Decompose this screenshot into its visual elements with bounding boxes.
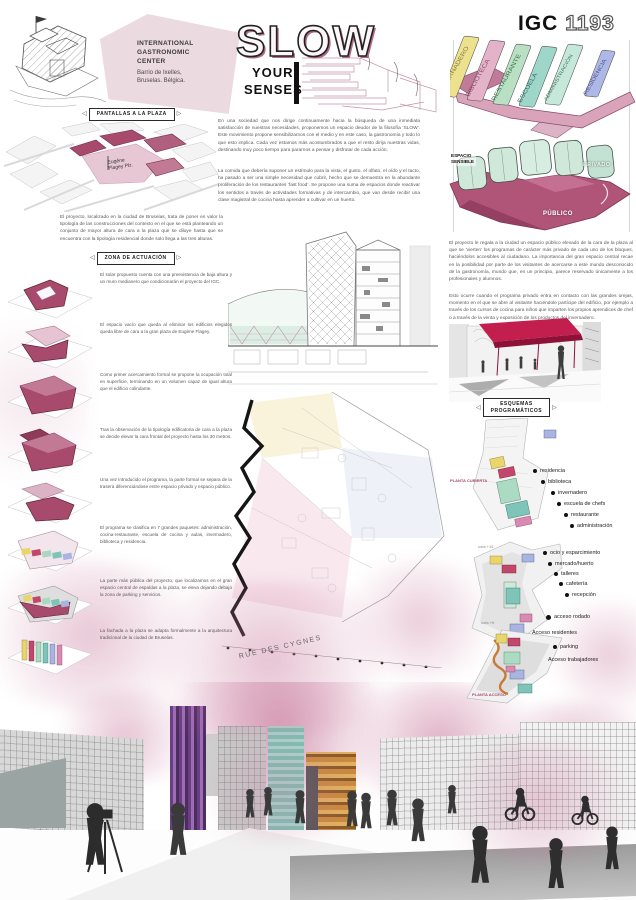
legend-item-escuela: escuela de chefs [557, 501, 605, 507]
step-axon-glyph [6, 372, 94, 420]
legend-label: Acceso trabajadores [548, 657, 598, 663]
chevron-right-icon: ▷ [177, 255, 182, 261]
step-text: Como primer acercamiento formal se propo… [100, 372, 232, 420]
chevron-left-icon: ◁ [82, 111, 87, 117]
legend-dot [565, 593, 569, 597]
building-section-drawing [228, 226, 438, 390]
legend-item-acceso-residentes: Acceso residentes [532, 630, 577, 636]
zona-step-7: La parte más pública del proyecto, que l… [6, 578, 234, 626]
legend-label: restaurante [571, 512, 599, 518]
program-plan-cubierta [468, 418, 568, 533]
tag-line2: PROGRAMÁTICOS [491, 408, 543, 415]
legend-dot [533, 469, 537, 473]
step-text: La fachada a la plaza se adapta formalme… [100, 628, 232, 676]
legend-item-biblioteca: biblioteca [541, 479, 571, 485]
zona-step-6: El programa se clasifica en 7 grandes pa… [6, 525, 234, 573]
step-axon-glyph [6, 427, 94, 475]
zone-label-publico: PÚBLICO [543, 211, 573, 217]
title-bar-decoration [294, 62, 299, 104]
legend-dot [570, 524, 574, 528]
legend-label: cafetería [566, 581, 587, 587]
legend-label: recepción [572, 592, 596, 598]
zona-step-3: Como primer acercamiento formal se propo… [6, 372, 234, 420]
intro-paragraph-1: En una sociedad que nos dirige continuam… [218, 118, 420, 154]
step-axon-glyph [6, 322, 94, 370]
plaza-render [449, 318, 601, 402]
legend-label: Acceso residentes [532, 630, 577, 636]
plan3-side-label: cota +6 [481, 620, 494, 625]
legend-dot [543, 551, 547, 555]
exploded-program-axon: INVERNADERO BIBLIOTECA RESTAURANTE ESCUE… [450, 20, 635, 132]
legend-dot [564, 513, 568, 517]
chevron-left-icon: ◁ [90, 255, 95, 261]
legend-item-parking: parking [553, 644, 578, 650]
legend-item-acceso-rodado: acceso rodado [546, 614, 590, 620]
chevron-left-icon: ◁ [476, 405, 481, 411]
project-code-number: 1193 [565, 12, 615, 35]
legend-label: acceso rodado [554, 614, 590, 620]
legend-dot [546, 615, 551, 620]
step-text: El solar propuesto cuenta con una preexi… [100, 272, 232, 320]
step-text: El espacio vacío que queda al eliminar l… [100, 322, 232, 370]
legend-label: escuela de chefs [564, 501, 605, 507]
poster: INTERNATIONAL GASTRONOMIC CENTER Barrio … [0, 0, 636, 900]
section-tag-pantallas: ◁ PANTALLAS A LA PLAZA ▷ [82, 108, 181, 121]
legend-item-mercado: mercado/huerto [548, 561, 594, 567]
chevron-right-icon: ▷ [552, 405, 557, 411]
zona-step-8: La fachada a la plaza se adapta formalme… [6, 628, 234, 676]
legend-dot [554, 572, 558, 576]
step-axon-glyph [6, 628, 94, 676]
center-name-line1: INTERNATIONAL [137, 40, 194, 49]
right-paragraph-2: Esto ocurre cuando el programa privado e… [449, 293, 633, 322]
step-axon-glyph [6, 578, 94, 626]
section-tag-zona: ◁ ZONA DE ACTUACIÓN ▷ [90, 252, 181, 265]
legend-item-invernadero: invernadero [551, 490, 587, 496]
legend-item-residencia: residencia [533, 468, 565, 474]
title-word-your: YOUR [252, 66, 294, 79]
step-text: La parte más pública del proyecto, que l… [100, 578, 232, 626]
legend-dot [541, 480, 545, 484]
legend-item-talleres: talleres [554, 571, 579, 577]
right-paragraph-1: El proyecto le regala a la ciudad un esp… [449, 240, 633, 283]
context-axon-sketch [6, 6, 111, 116]
section-tag-esquemas: ◁ ESQUEMAS PROGRAMÁTICOS ▷ [476, 398, 557, 417]
legend-label: talleres [561, 571, 579, 577]
step-axon-glyph [6, 477, 94, 525]
legend-item-cafeteria: cafetería [559, 581, 587, 587]
center-location-line2: Bruselas. Bélgica. [137, 77, 194, 85]
plan2-side-label: cota +15 [478, 544, 493, 549]
poster-title: SLOW YOUR SENSES [236, 22, 446, 106]
legend-label: residencia [540, 468, 565, 474]
legend-item-restaurante: restaurante [564, 512, 599, 518]
legend-dot [551, 491, 555, 495]
zona-step-1: El solar propuesto cuenta con una preexi… [6, 272, 234, 320]
project-code-prefix: IGC [518, 12, 558, 35]
legend-label: mercado/huerto [555, 561, 594, 567]
intro-paragraph-2: La comida que debería suponer un estímul… [218, 168, 420, 204]
step-text: Una vez introducido el programa, la part… [100, 477, 232, 525]
step-text: Tras la observación de la tipología edif… [100, 427, 232, 475]
legend-dot [548, 562, 552, 566]
center-name-line3: CENTER [137, 58, 194, 67]
legend-dot [559, 582, 563, 586]
legend-label: parking [560, 644, 578, 650]
plan1-side-label: PLANTA CUBIERTA [450, 478, 487, 483]
legend-label: ocio y esparcimiento [550, 550, 600, 556]
step-axon-glyph [6, 272, 94, 320]
center-location-line1: Barrio de Ixelles, [137, 69, 194, 77]
section-tag-label: PANTALLAS A LA PLAZA [89, 108, 175, 121]
chevron-right-icon: ▷ [177, 111, 182, 117]
center-name-line2: GASTRONOMIC [137, 49, 194, 58]
left-intro-paragraph: El proyecto, localizado en la ciudad de … [60, 214, 223, 243]
project-header-text: INTERNATIONAL GASTRONOMIC CENTER Barrio … [137, 40, 194, 85]
legend-label: biblioteca [548, 479, 571, 485]
title-word-slow: SLOW [236, 22, 446, 62]
zone-label-line2: SENSIBLE [451, 159, 474, 165]
step-axon-glyph [6, 525, 94, 573]
zona-step-5: Una vez introducido el programa, la part… [6, 477, 234, 525]
legend-label: invernadero [558, 490, 587, 496]
legend-dot [557, 502, 561, 506]
step-text: El programa se clasifica en 7 grandes pa… [100, 525, 232, 573]
zone-label-espacio-sensible: ESPACIO SENSIBLE [449, 152, 476, 166]
plan3-bottom-label: PLANTA ACCESO [472, 692, 506, 697]
legend-dot [553, 645, 557, 649]
legend-item-acceso-trabajadores: Acceso trabajadores [548, 657, 598, 663]
legend-item-recepcion: recepción [565, 592, 596, 598]
project-code: IGC 1193 [518, 12, 615, 36]
section-tag-label: ESQUEMAS PROGRAMÁTICOS [483, 398, 551, 417]
public-private-axon [445, 122, 635, 234]
zona-step-2: El espacio vacío que queda al eliminar l… [6, 322, 234, 370]
section-tag-label: ZONA DE ACTUACIÓN [97, 252, 175, 265]
legend-item-ocio: ocio y esparcimiento [543, 550, 600, 556]
legend-label: administración [577, 523, 612, 529]
zone-label-privado: PRIVADO [583, 162, 610, 168]
legend-item-administracion: administración [570, 523, 612, 529]
zona-step-4: Tras la observación de la tipología edif… [6, 427, 234, 475]
